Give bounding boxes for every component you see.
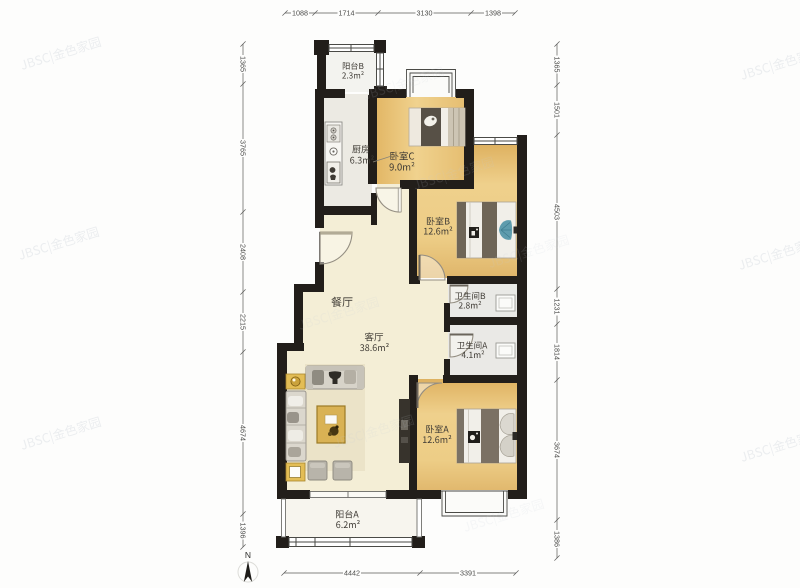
svg-text:1398: 1398: [485, 9, 501, 18]
svg-text:4442: 4442: [344, 569, 360, 578]
svg-text:1365: 1365: [239, 56, 248, 72]
svg-text:1365: 1365: [553, 57, 562, 73]
svg-text:1231: 1231: [553, 299, 562, 315]
svg-text:1501: 1501: [553, 102, 562, 118]
svg-text:3674: 3674: [553, 442, 562, 458]
svg-text:2215: 2215: [239, 314, 248, 330]
svg-text:3765: 3765: [239, 140, 248, 156]
svg-text:3130: 3130: [417, 9, 433, 18]
svg-text:1386: 1386: [553, 531, 562, 547]
svg-text:N: N: [245, 550, 251, 560]
svg-text:2408: 2408: [239, 244, 248, 260]
svg-text:4503: 4503: [553, 204, 562, 220]
svg-text:1396: 1396: [239, 523, 248, 539]
svg-text:1088: 1088: [292, 9, 308, 18]
svg-text:1814: 1814: [553, 344, 562, 360]
svg-text:3391: 3391: [460, 569, 476, 578]
svg-text:4674: 4674: [239, 425, 248, 441]
svg-text:1714: 1714: [339, 9, 355, 18]
